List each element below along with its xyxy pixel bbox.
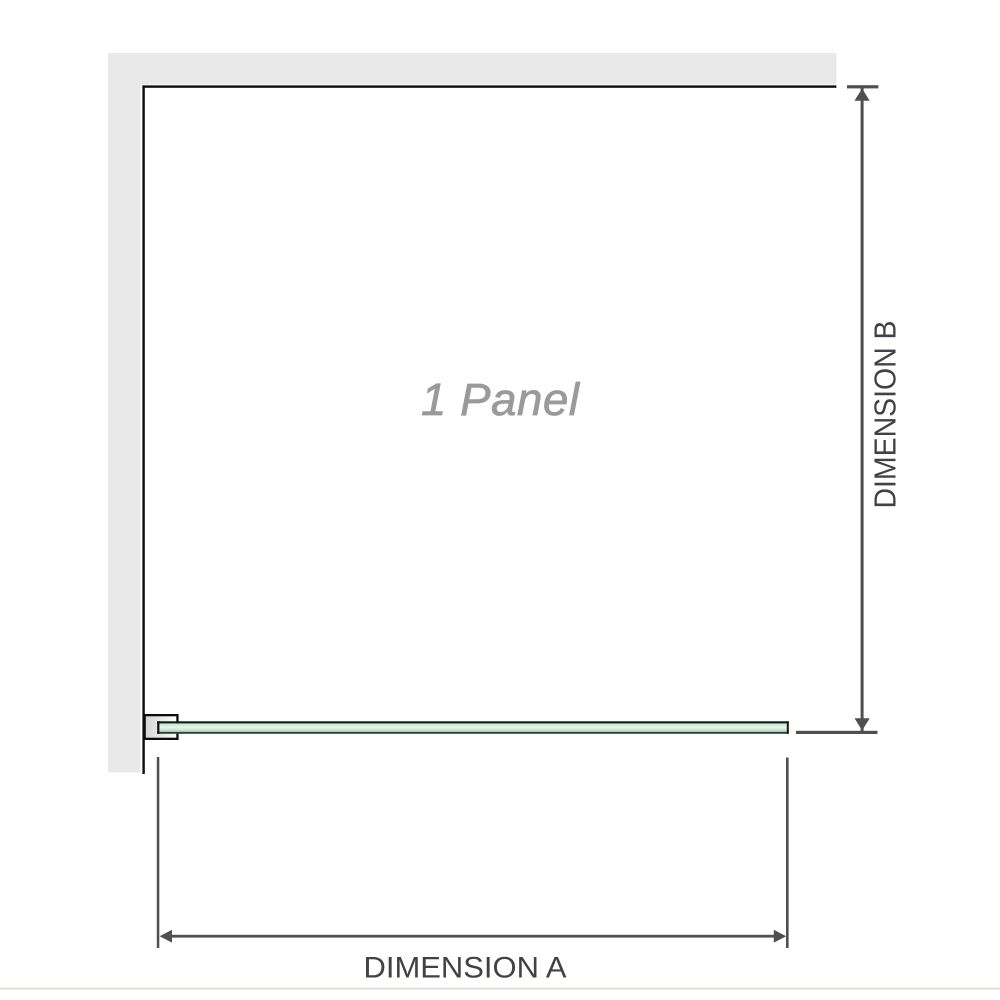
svg-text:DIMENSION B: DIMENSION B — [869, 321, 903, 509]
svg-text:1 Panel: 1 Panel — [421, 374, 581, 425]
svg-text:DIMENSION A: DIMENSION A — [364, 951, 567, 984]
